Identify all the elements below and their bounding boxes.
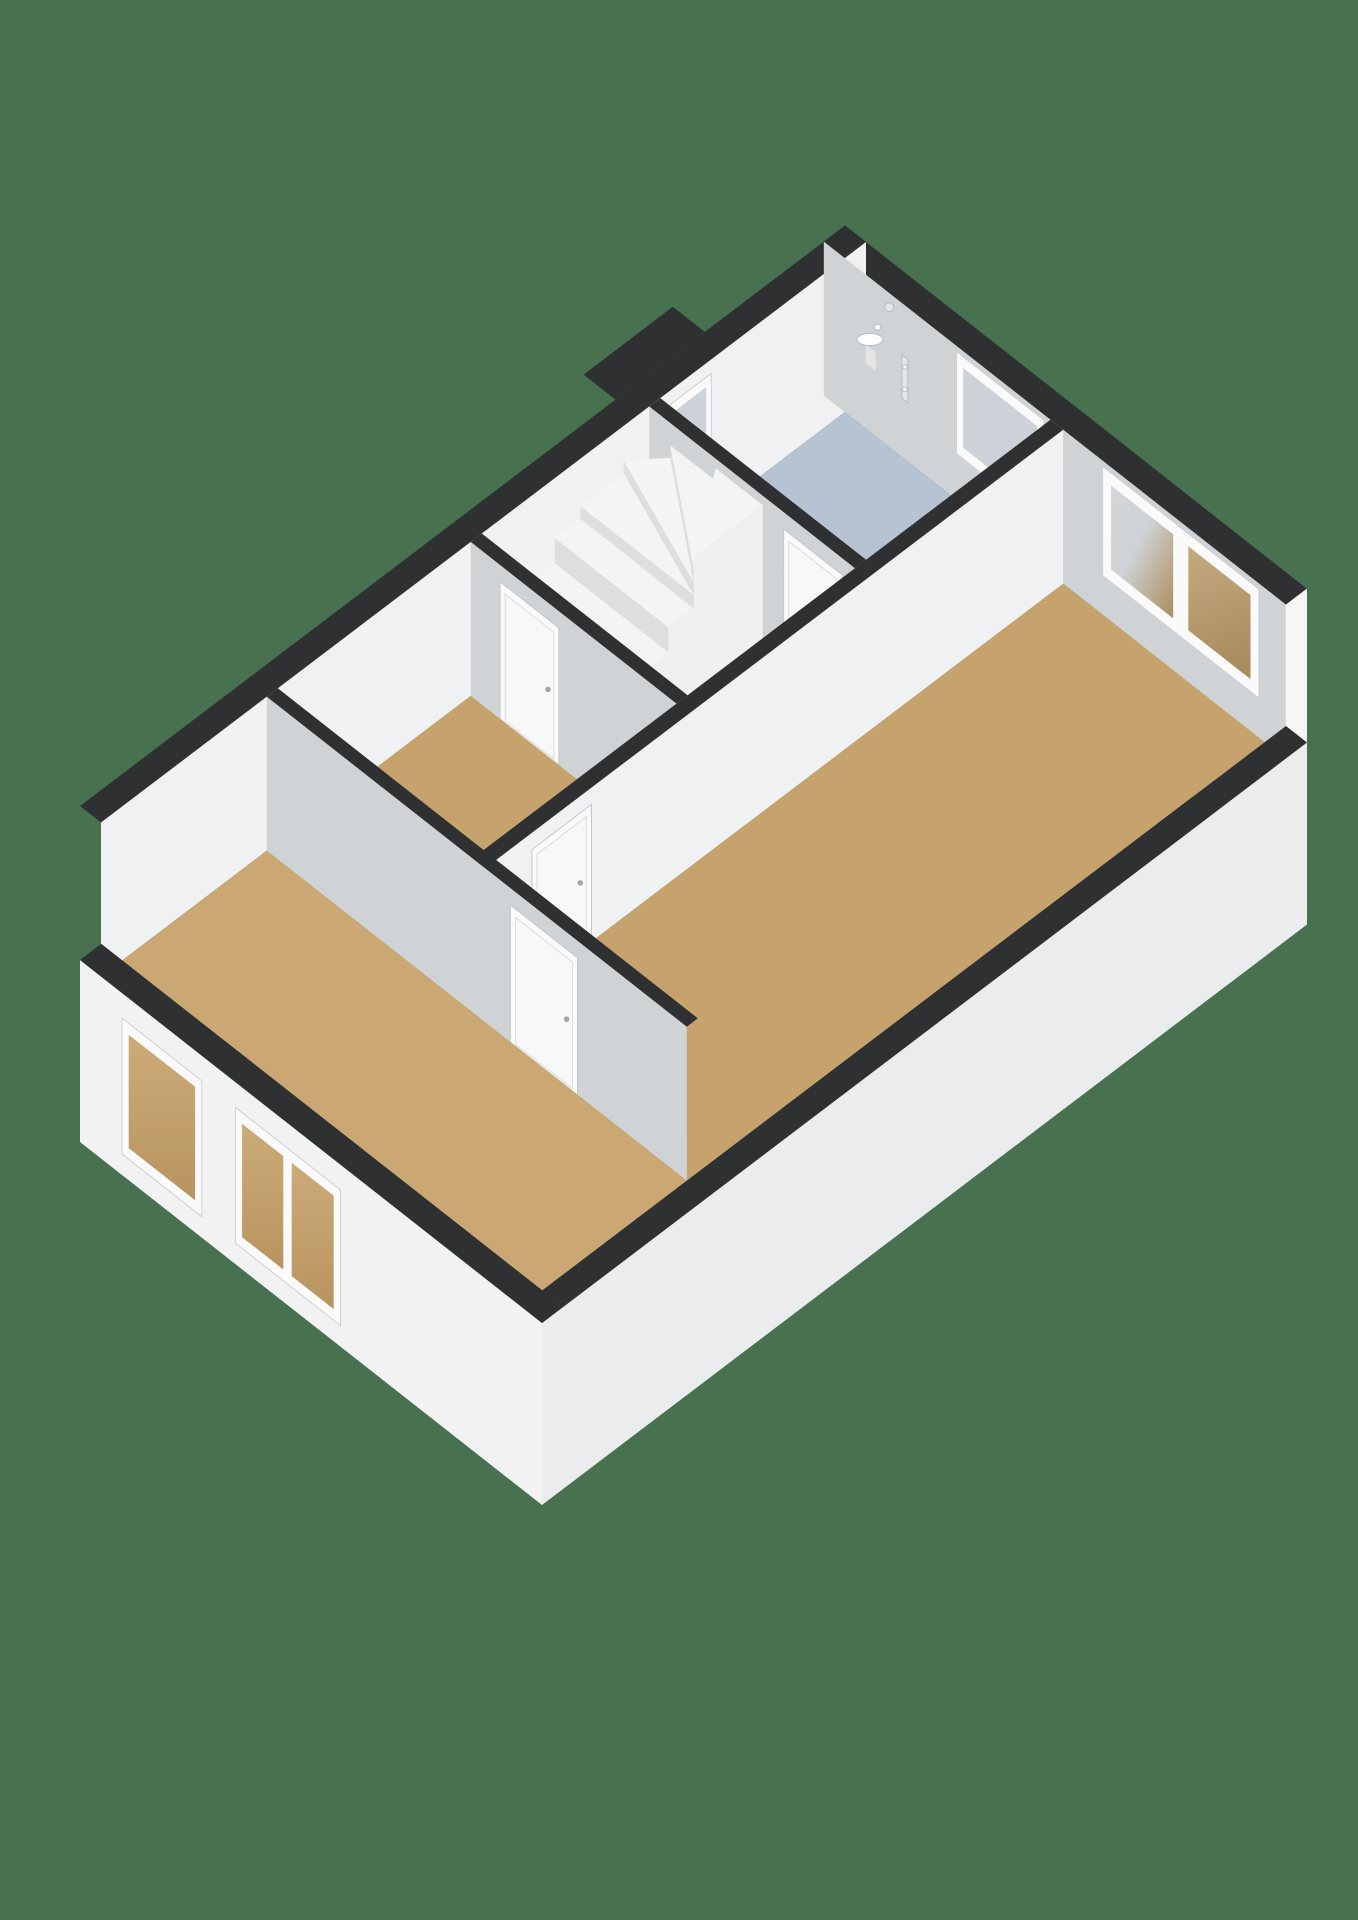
faucet-icon [874, 324, 880, 330]
mixer-knob-bottom [903, 387, 907, 391]
mirror-icon [885, 303, 894, 312]
shower-mixer-icon [902, 355, 908, 403]
floorplan-3d-render [0, 0, 1358, 1920]
building-cutaway [80, 226, 1307, 1506]
right-bedroom-door-handle-icon [578, 880, 584, 886]
left-bedroom-door-handle-icon [545, 687, 551, 693]
wash-basin-icon [857, 334, 883, 346]
front-bedroom-door-handle-icon [564, 1016, 570, 1022]
mixer-knob-top [903, 365, 907, 369]
floorplan-stage [0, 0, 1358, 1920]
